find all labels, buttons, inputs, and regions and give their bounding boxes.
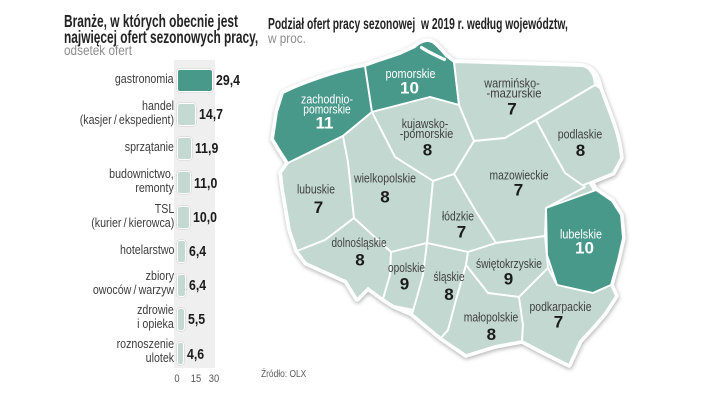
svg-text:7: 7: [554, 313, 563, 332]
svg-text:8: 8: [423, 141, 432, 160]
svg-text:7: 7: [457, 223, 466, 242]
svg-text:małopolskie: małopolskie: [464, 310, 519, 324]
svg-text:7: 7: [507, 100, 516, 119]
svg-text:8: 8: [444, 285, 453, 304]
svg-text:11: 11: [316, 114, 334, 133]
svg-text:8: 8: [576, 141, 585, 160]
svg-text:-mazurskie: -mazurskie: [487, 87, 542, 101]
svg-text:8: 8: [355, 251, 364, 270]
svg-text:dolnośląskie: dolnośląskie: [332, 236, 387, 250]
svg-text:śląskie: śląskie: [434, 270, 465, 284]
svg-text:10: 10: [575, 239, 594, 258]
svg-text:7: 7: [314, 198, 323, 217]
svg-text:podlaskie: podlaskie: [558, 128, 603, 142]
svg-text:-pomorskie: -pomorskie: [400, 127, 454, 141]
svg-text:8: 8: [487, 325, 496, 344]
svg-text:7: 7: [514, 180, 523, 199]
svg-text:9: 9: [504, 270, 513, 289]
svg-text:łódzkie: łódzkie: [442, 210, 474, 224]
svg-text:lubuskie: lubuskie: [297, 182, 335, 196]
svg-text:9: 9: [400, 275, 409, 294]
svg-text:wielkopolskie: wielkopolskie: [353, 172, 416, 186]
svg-text:8: 8: [380, 188, 389, 207]
svg-text:10: 10: [400, 78, 419, 97]
svg-text:opolskie: opolskie: [388, 261, 425, 275]
